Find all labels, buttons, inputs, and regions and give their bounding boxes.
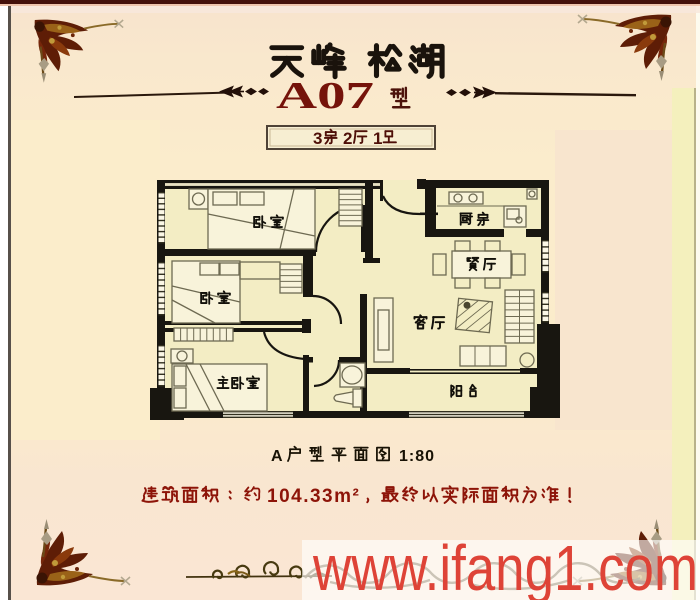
svg-text:A07: A07 [276, 75, 374, 117]
svg-text:A: A [271, 448, 283, 465]
svg-text:2: 2 [343, 129, 352, 148]
svg-text:1: 1 [373, 129, 382, 148]
svg-text:www.ifang1.com: www.ifang1.com [312, 532, 698, 600]
svg-text:104.33m²: 104.33m² [267, 486, 360, 507]
svg-text:3: 3 [313, 129, 322, 148]
svg-text:1:80: 1:80 [399, 448, 435, 465]
